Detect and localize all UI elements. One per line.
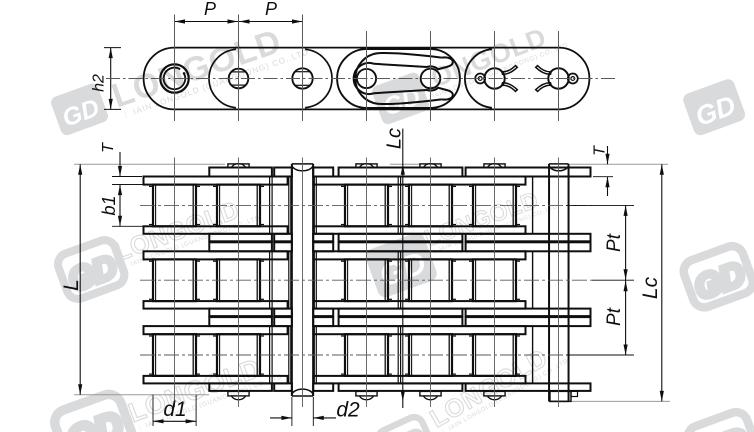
svg-text:T: T	[592, 145, 609, 156]
svg-text:L: L	[60, 279, 83, 291]
svg-text:T: T	[100, 142, 117, 153]
svg-text:h2: h2	[91, 74, 108, 92]
svg-text:P: P	[204, 0, 216, 19]
svg-text:Lc: Lc	[384, 128, 406, 149]
svg-text:GD: GD	[689, 255, 750, 308]
svg-text:Pt: Pt	[604, 307, 625, 326]
svg-text:d1: d1	[163, 398, 186, 421]
svg-text:Lc: Lc	[639, 276, 662, 299]
svg-text:P: P	[265, 0, 277, 19]
svg-text:d2: d2	[336, 399, 360, 422]
svg-text:Pt: Pt	[604, 233, 625, 252]
svg-text:b1: b1	[99, 195, 119, 215]
svg-text:LONGOLD: LONGOLD	[425, 344, 552, 432]
